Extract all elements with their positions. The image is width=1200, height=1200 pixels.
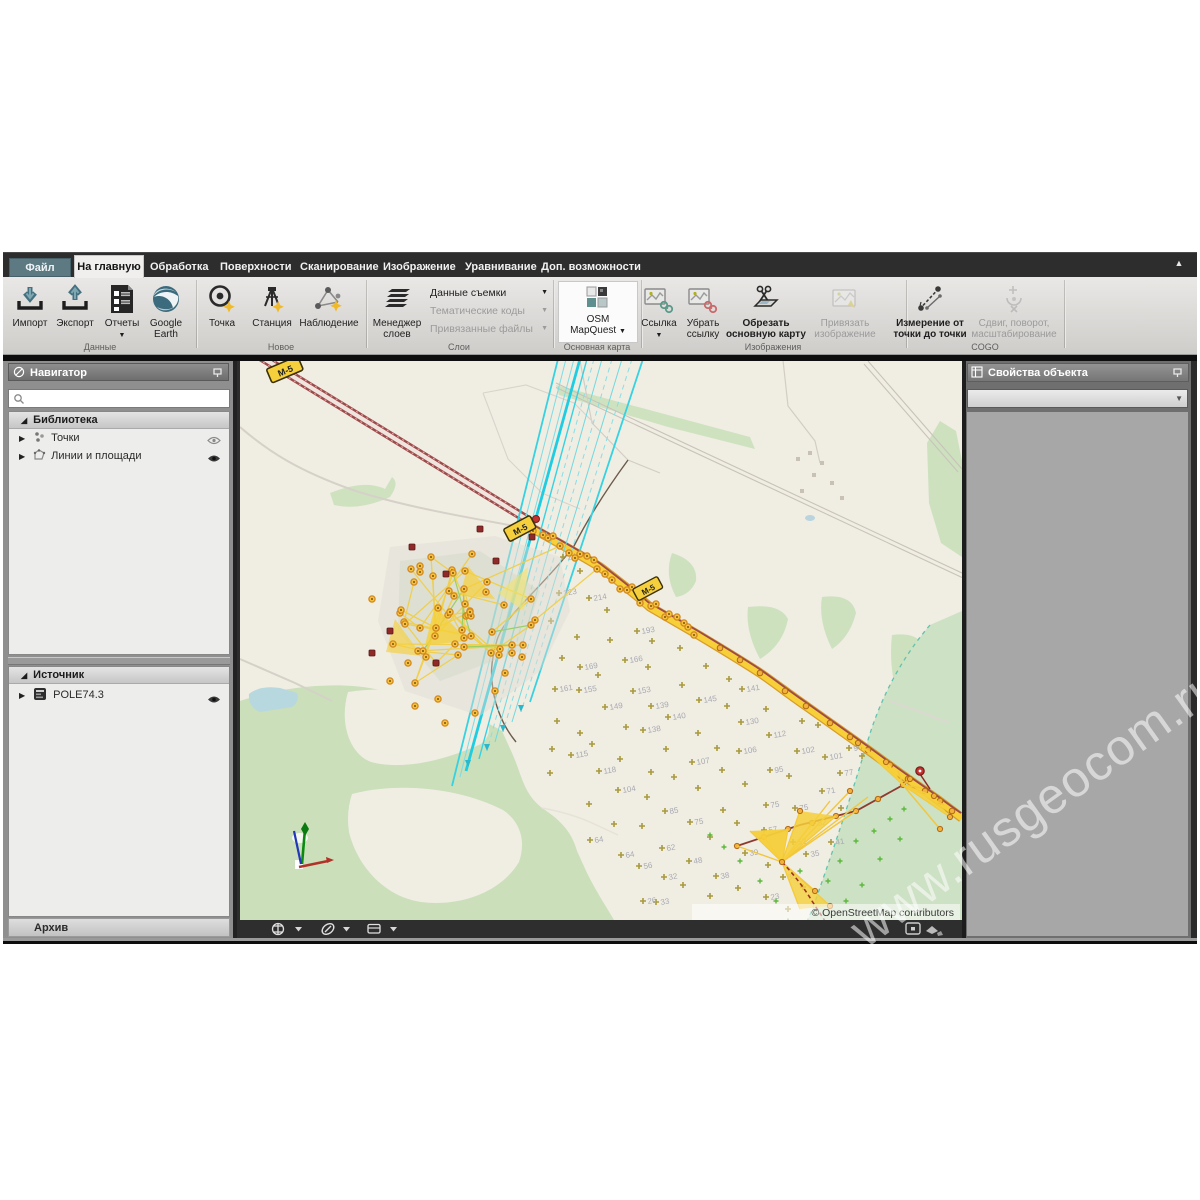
- svg-text:© OpenStreetMap contributors: © OpenStreetMap contributors: [811, 907, 954, 919]
